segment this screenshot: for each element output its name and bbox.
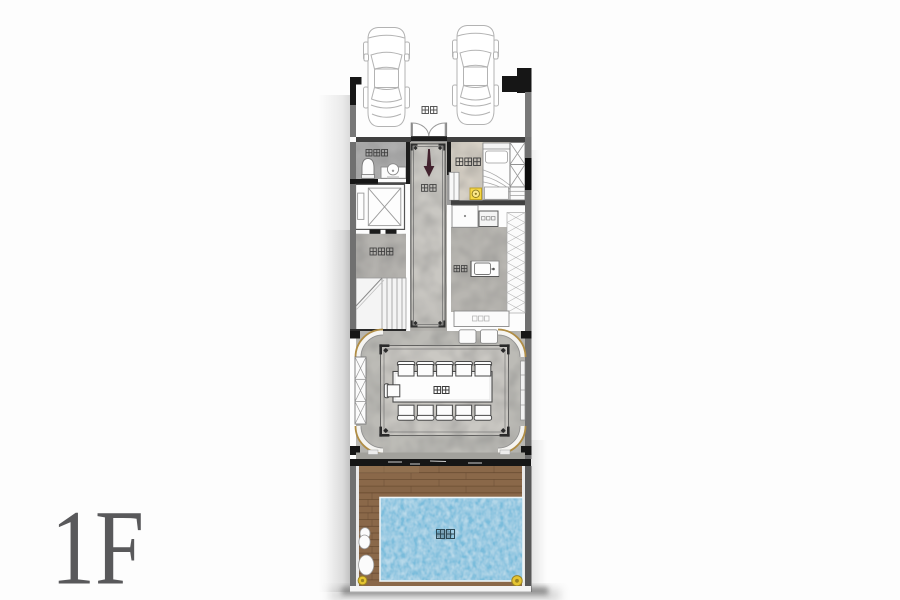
svg-text:1F: 1F [51,490,144,600]
